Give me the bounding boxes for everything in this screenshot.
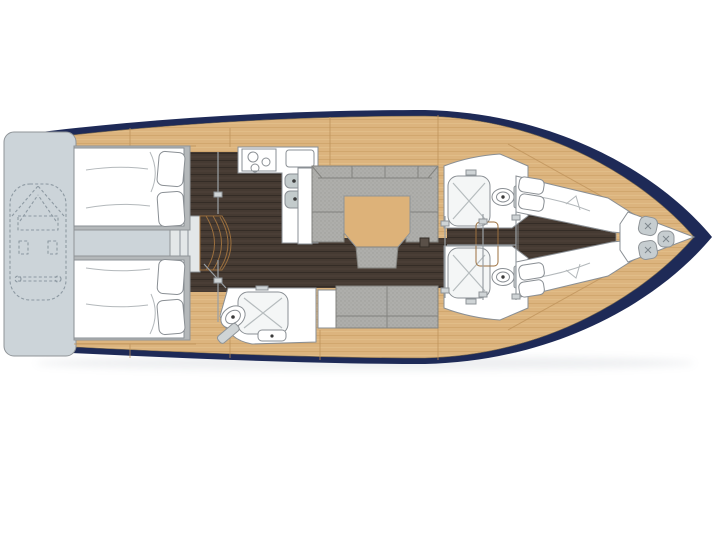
aft-cabin-port — [74, 146, 190, 230]
door-handle — [512, 215, 520, 220]
toilet-drain — [501, 195, 504, 198]
door-handle — [441, 221, 449, 226]
yacht-floorplan-image — [0, 0, 728, 546]
pillow — [157, 151, 186, 187]
aft-cabin-starboard — [74, 256, 190, 340]
center-walkway — [74, 228, 172, 258]
drain — [292, 179, 296, 183]
stool — [356, 247, 398, 268]
door-handle — [479, 292, 487, 297]
door-handle — [441, 288, 449, 293]
floorplan-svg — [0, 0, 728, 546]
shower-mixer — [256, 286, 268, 290]
salon-table — [344, 196, 410, 247]
door-handle — [214, 192, 222, 197]
pillow — [157, 259, 185, 295]
toilet-drain — [231, 315, 235, 319]
shower-mixer — [466, 170, 476, 175]
sink-cover — [286, 150, 314, 167]
pillow — [157, 191, 185, 227]
locker — [318, 290, 336, 328]
pillow — [157, 299, 186, 335]
door-handle — [214, 278, 222, 283]
drain — [270, 334, 273, 337]
door-handle — [479, 219, 487, 224]
platform-surface — [4, 132, 76, 356]
drain — [293, 197, 297, 201]
toilet-drain — [501, 275, 504, 278]
sideboard — [298, 168, 312, 244]
shower-mixer — [466, 299, 476, 304]
floor-hatch — [420, 238, 429, 247]
door-handle — [512, 294, 520, 299]
